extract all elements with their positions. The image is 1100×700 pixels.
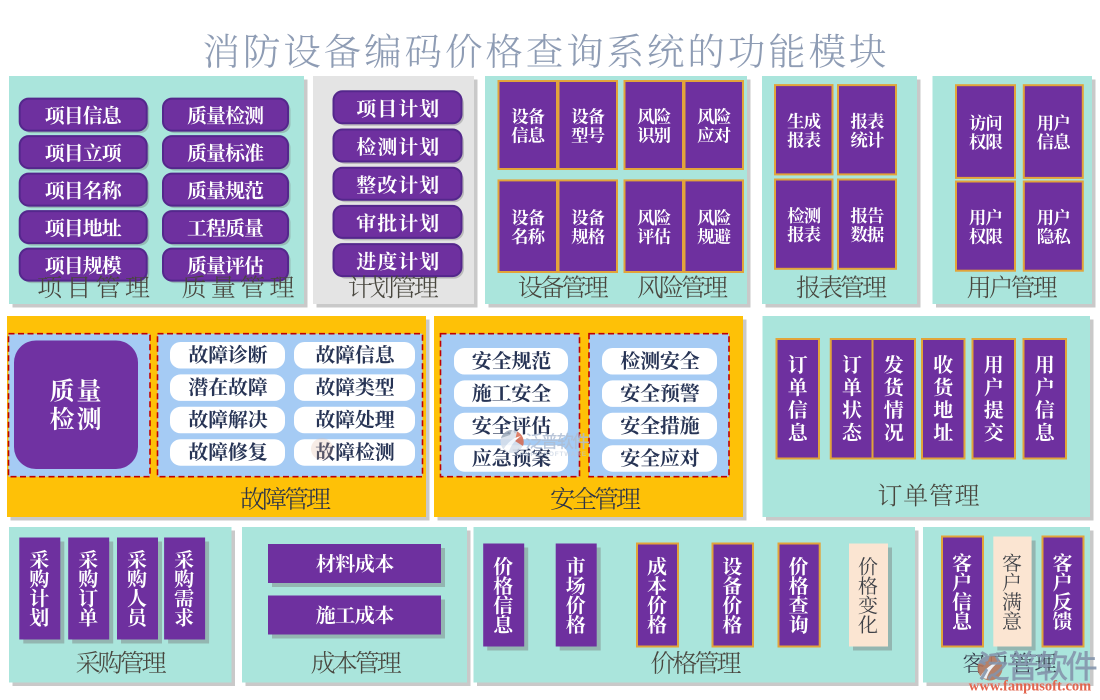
svg-text:www.fanpusoft.com: www.fanpusoft.com [969, 679, 1091, 695]
svg-text:FANPU SOFTWARE: FANPU SOFTWARE [515, 451, 587, 458]
